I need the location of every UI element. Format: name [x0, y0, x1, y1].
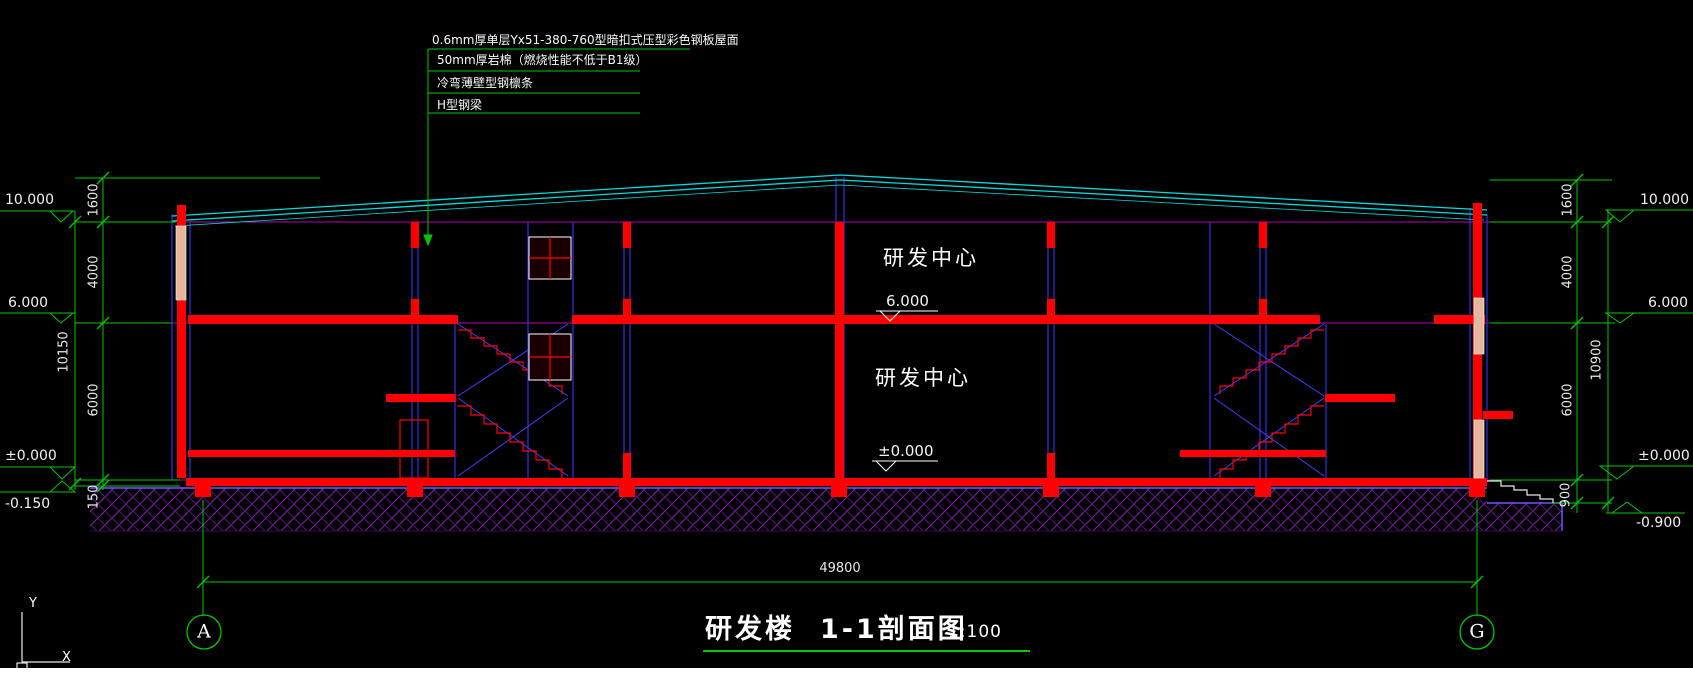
elevation-label-left-m150: -0.150 [5, 497, 50, 511]
roof-note-3: 冷弯薄壁型钢檩条 [437, 77, 533, 89]
elevation-label-right-0: ±0.000 [1638, 449, 1690, 463]
level-lines [85, 222, 1610, 480]
elevation-label-right-m900: -0.900 [1636, 516, 1681, 530]
cad-model-space-canvas[interactable]: 0.6mm厚单层Yx51-380-760型暗扣式压型彩色钢板屋面 50mm厚岩棉… [0, 0, 1693, 674]
wall-windows [176, 226, 1484, 478]
dim-overall-49800: 49800 [819, 562, 860, 575]
ucs-y-label: Y [29, 597, 37, 610]
elevation-label-right-6000: 6.000 [1648, 296, 1688, 310]
roof-note-1: 0.6mm厚单层Yx51-380-760型暗扣式压型彩色钢板屋面 [432, 34, 739, 46]
floor-mark-0: ±0.000 [878, 444, 934, 459]
title-scale: 1:100 [948, 624, 1002, 641]
elevation-label-left-10000: 10.000 [5, 193, 54, 207]
roof-note-2: 50mm厚岩棉（燃烧性能不低于B1级） [437, 54, 648, 66]
elevation-label-left-6000: 6.000 [8, 296, 48, 310]
interior-windows [529, 237, 571, 380]
ground-hatch [90, 488, 1562, 531]
exterior-steps [1487, 481, 1553, 503]
dim-right-4000: 4000 [1562, 255, 1575, 288]
floor-mark-6000: 6.000 [886, 294, 929, 309]
title-view: 1-1剖面图 [820, 616, 968, 643]
red-structure [177, 203, 1513, 497]
elevation-label-left-0: ±0.000 [5, 449, 57, 463]
room-label-upper: 研发中心 [883, 248, 979, 269]
dim-left-150: 150 [88, 485, 101, 510]
dim-left-total-10150: 10150 [58, 331, 71, 372]
dim-left-4000: 4000 [88, 255, 101, 288]
window-bottom-edge [0, 668, 1693, 674]
dim-left-6000: 6000 [88, 383, 101, 416]
elevation-label-right-10000: 10.000 [1640, 193, 1689, 207]
dim-right-900: 900 [1560, 483, 1573, 508]
title-building: 研发楼 [705, 616, 795, 643]
elevation-markers [50, 210, 1642, 513]
ucs-x-label: X [62, 651, 71, 664]
dim-right-1600: 1600 [1562, 183, 1575, 216]
room-label-lower: 研发中心 [875, 368, 971, 389]
roof-lines [172, 175, 1487, 226]
dim-left-1600: 1600 [88, 183, 101, 216]
dim-right-6000: 6000 [1562, 383, 1575, 416]
dim-right-total-10900: 10900 [1591, 339, 1604, 380]
roof-note-4: H型钢梁 [437, 99, 482, 111]
grid-bubble-a-label: A [197, 623, 211, 642]
grid-bubble-g-label: G [1469, 623, 1484, 642]
